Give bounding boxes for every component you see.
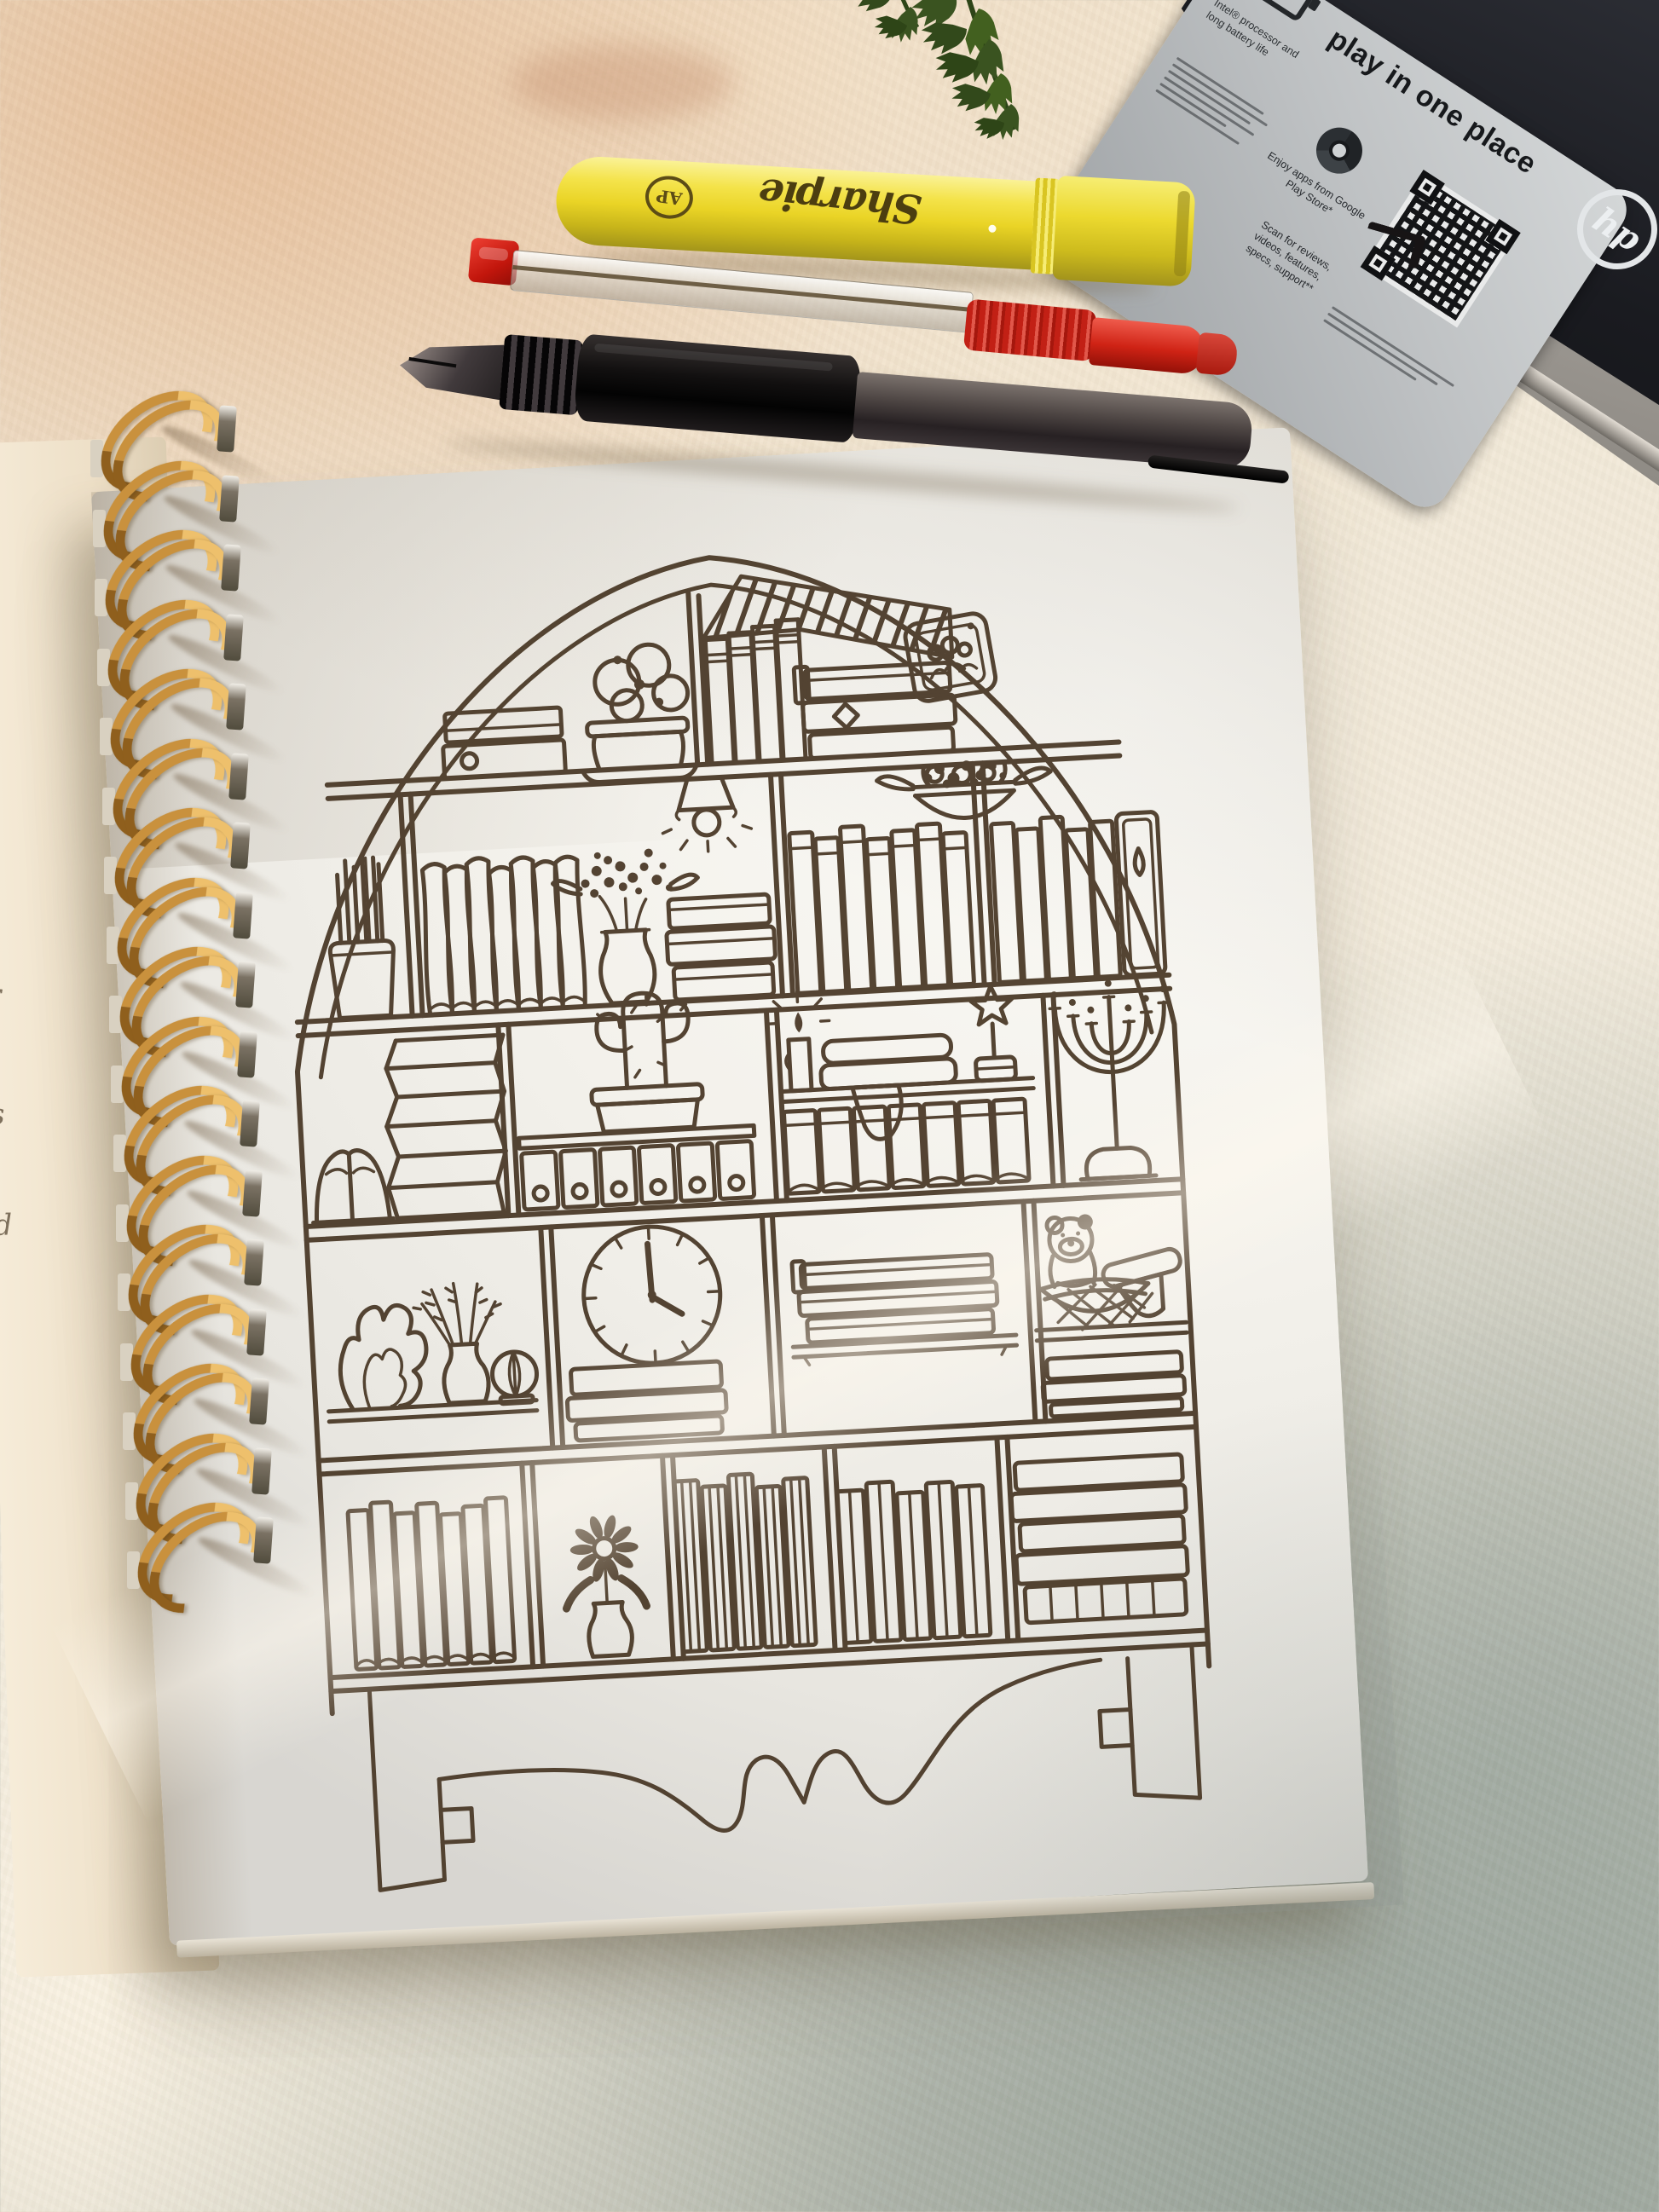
chrome-icon <box>1308 118 1372 182</box>
open-book <box>309 1149 393 1223</box>
black-pen-barrel <box>853 372 1254 471</box>
curled-book-row <box>783 1099 1029 1193</box>
wall-clock <box>581 1223 724 1366</box>
pendant-lamp <box>660 776 752 853</box>
tall-book-spines <box>673 1471 816 1652</box>
zigzag-book-pile <box>380 1035 512 1218</box>
sticker-qr-caption: Scan for reviews, videos, features, spec… <box>1244 218 1360 314</box>
black-pen-nose-cone <box>397 336 509 401</box>
pencil-cup <box>325 855 396 1019</box>
book-group <box>836 1476 991 1643</box>
floating-shelf-books <box>789 1250 1017 1366</box>
striped-book-stack <box>1009 1454 1192 1624</box>
menorah <box>1049 977 1178 1181</box>
red-pen-grip <box>963 298 1097 361</box>
black-pen-ridged-collar <box>499 334 583 415</box>
black-pen-grip <box>573 333 862 443</box>
ring-binders <box>522 1141 754 1210</box>
peony-flower-pot <box>576 643 697 783</box>
notebook-page <box>91 427 1368 1946</box>
sticker-fineprint-2 <box>1323 306 1454 400</box>
small-book-stack <box>665 894 777 1001</box>
heart-cutout-apron <box>435 1660 1108 1845</box>
decor-shelf <box>322 1279 539 1422</box>
red-pen-end <box>1196 332 1239 377</box>
book-row-bottom-left <box>348 1496 515 1670</box>
sticker-fineprint <box>1155 57 1272 153</box>
daisy-in-vase <box>562 1512 650 1658</box>
leaning-wavy-books <box>420 853 586 1014</box>
highlighter-cap <box>1052 176 1196 287</box>
book-row-with-binder <box>991 811 1165 982</box>
stacked-books <box>442 707 566 779</box>
book-row <box>789 820 974 993</box>
book-stack-under-clock <box>565 1361 727 1441</box>
bookshelf-drawing <box>185 468 1309 1907</box>
teddy-bear-basket-shelf <box>1030 1209 1194 1341</box>
binding-coil <box>127 1510 280 1599</box>
book-stack-right <box>1041 1352 1185 1418</box>
